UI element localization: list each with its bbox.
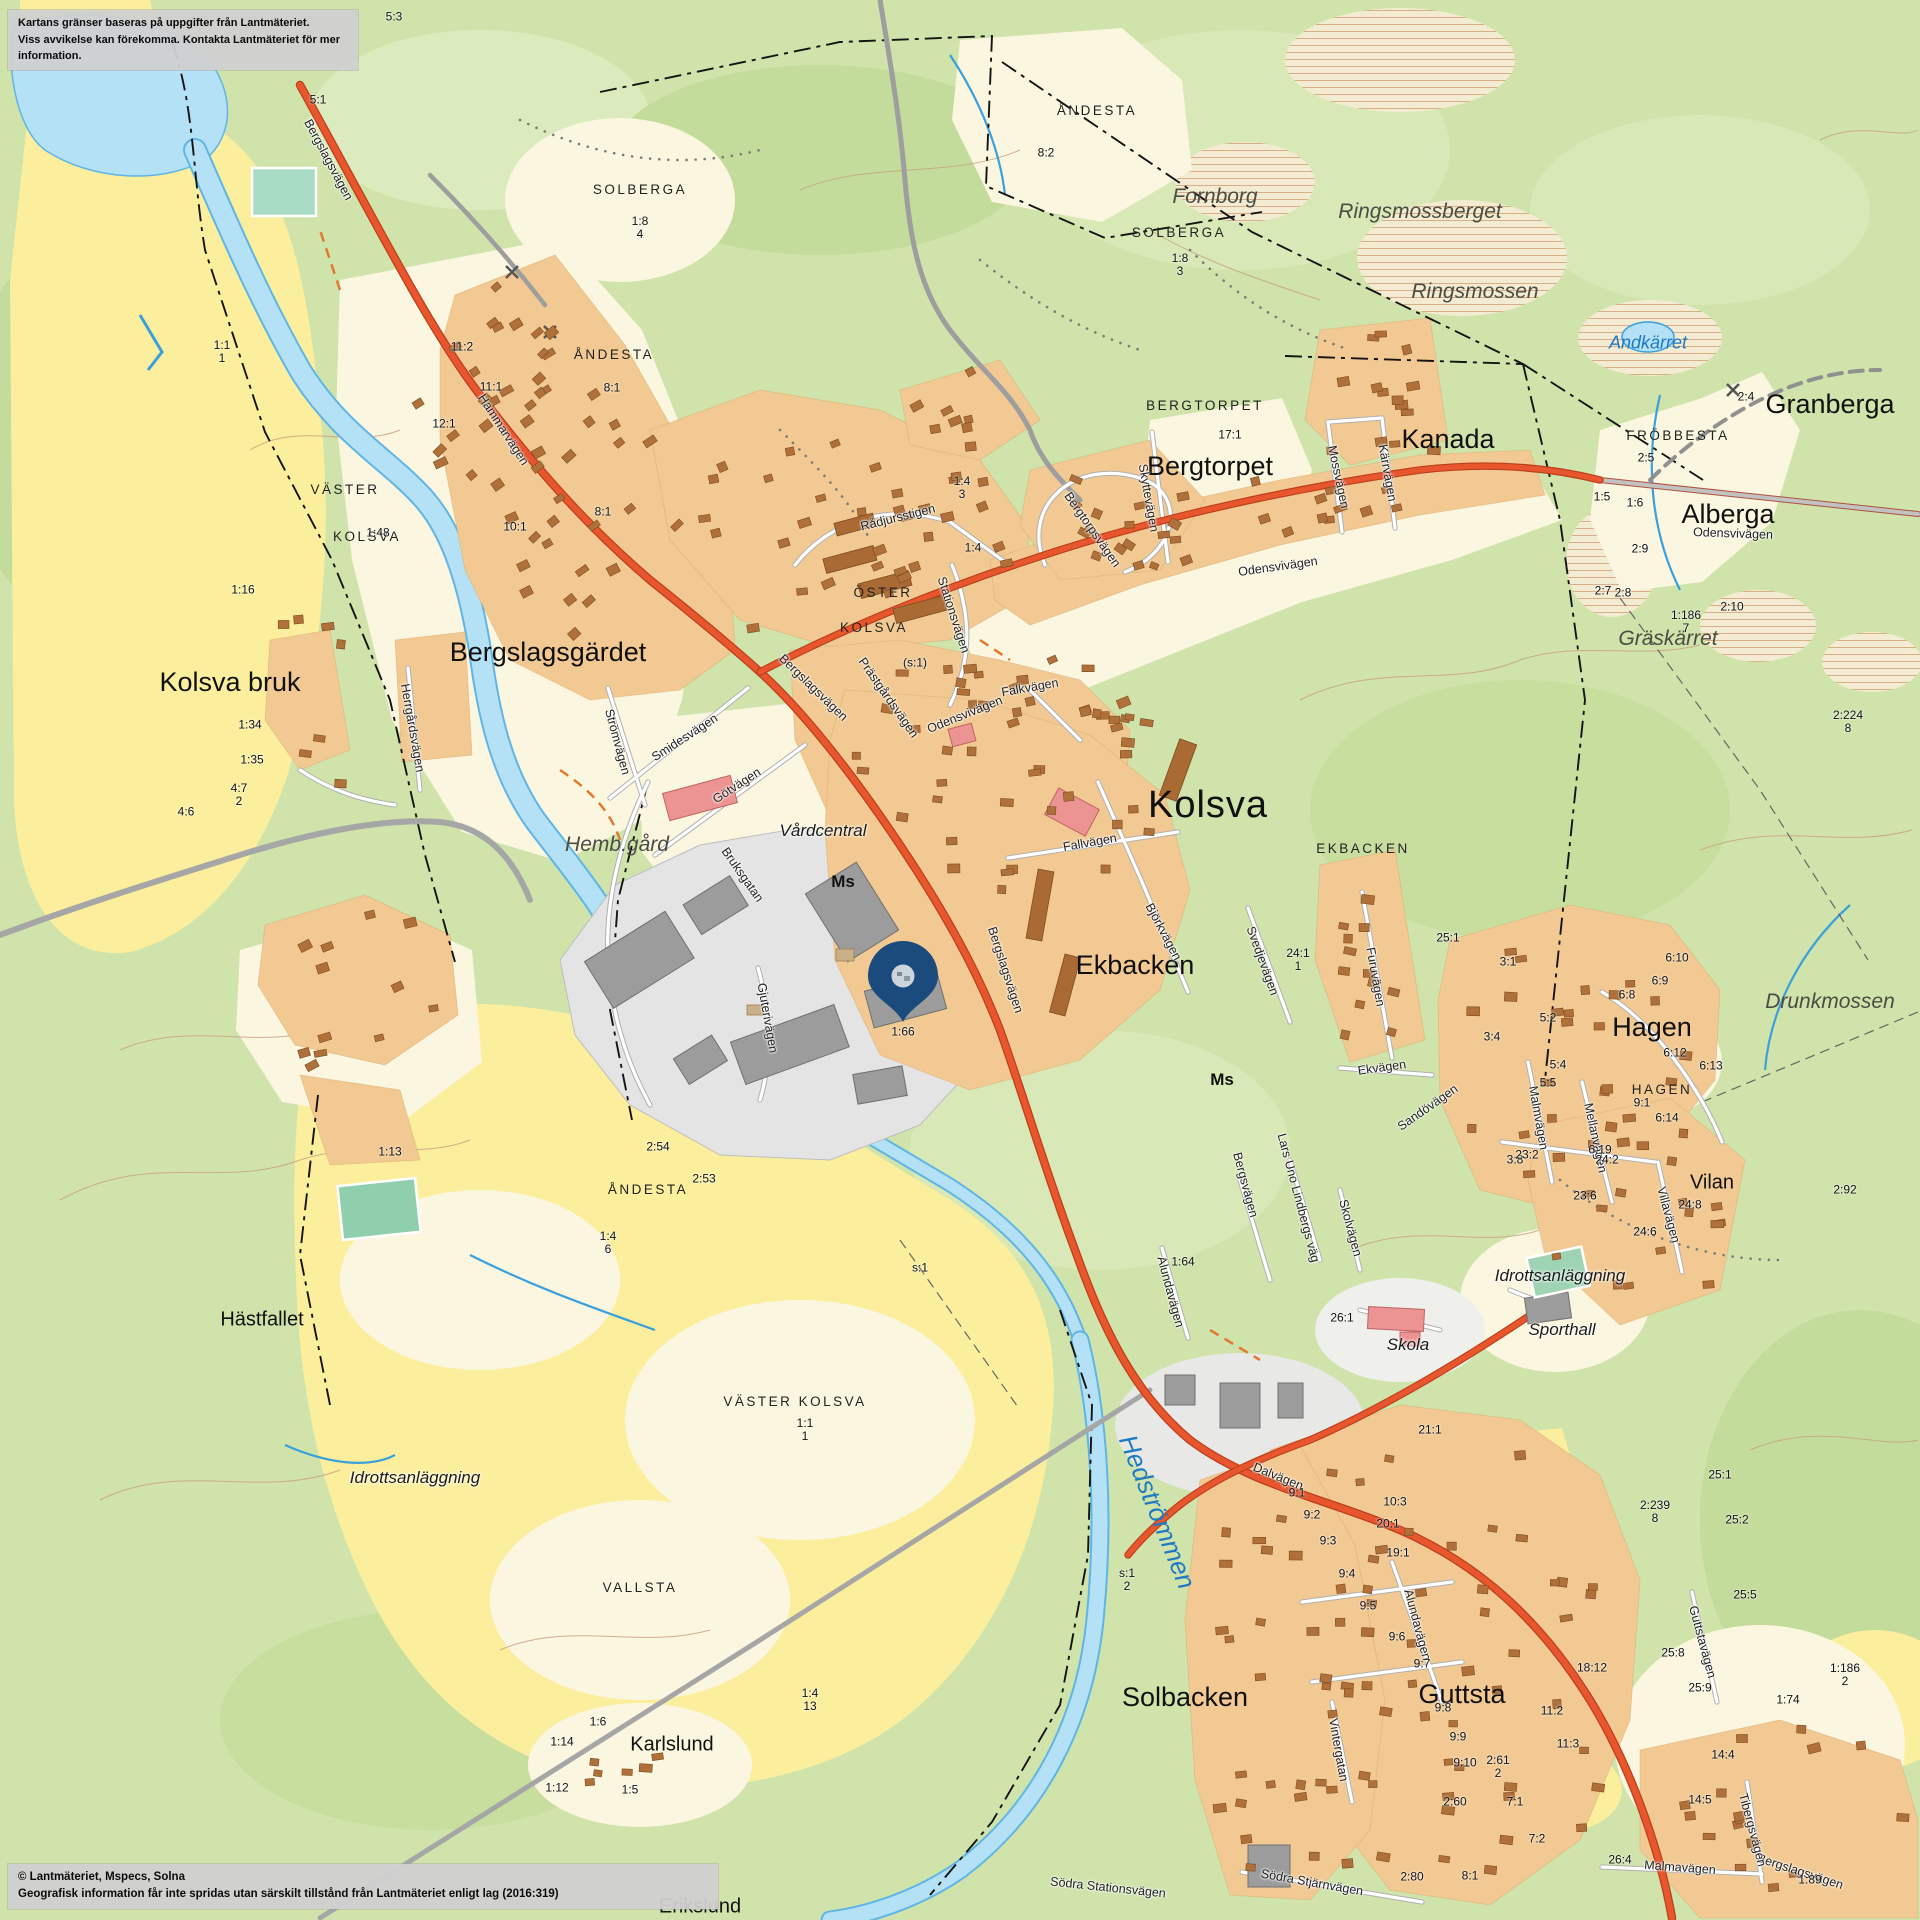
house-footprint xyxy=(1488,1525,1498,1533)
house-footprint xyxy=(1553,1153,1565,1162)
map-canvas[interactable]: KolsvaBergslagsgärdetKolsva brukHästfall… xyxy=(0,0,1920,1920)
house-footprint xyxy=(278,620,289,628)
house-footprint xyxy=(1235,1771,1246,1779)
house-footprint xyxy=(1588,1584,1597,1591)
copyright-notice: © Lantmäteriet, Mspecs, Solna Geografisk… xyxy=(8,1864,718,1909)
house-footprint xyxy=(1733,1811,1744,1821)
house-footprint xyxy=(1492,1686,1502,1694)
house-footprint xyxy=(747,623,760,633)
disclaimer-line-1: Kartans gränser baseras på uppgifter frå… xyxy=(18,15,348,32)
house-footprint xyxy=(1613,1280,1622,1289)
house-footprint xyxy=(1541,1079,1554,1086)
house-footprint xyxy=(852,752,860,759)
house-footprint xyxy=(1444,1759,1453,1766)
house-footprint xyxy=(1504,1782,1517,1791)
house-footprint xyxy=(1256,1618,1266,1626)
house-footprint xyxy=(1125,713,1135,720)
house-footprint xyxy=(1359,923,1369,931)
house-footprint xyxy=(1344,1688,1353,1697)
house-footprint xyxy=(1477,1585,1488,1594)
disclaimer-line-2: Viss avvikelse kan förekomma. Kontakta L… xyxy=(18,32,348,65)
house-footprint xyxy=(951,472,962,481)
house-footprint xyxy=(1897,1813,1909,1821)
house-footprint xyxy=(1552,1008,1564,1016)
house-footprint xyxy=(1327,446,1336,454)
house-footprint xyxy=(1441,1806,1455,1816)
house-footprint xyxy=(1092,709,1101,719)
map-disclaimer-note: Kartans gränser baseras på uppgifter frå… xyxy=(8,10,358,70)
house-footprint xyxy=(652,1753,664,1761)
house-footprint xyxy=(1320,1674,1332,1684)
house-footprint xyxy=(1467,1007,1480,1016)
house-footprint xyxy=(1623,1282,1634,1290)
house-footprint xyxy=(1327,1469,1338,1477)
house-footprint xyxy=(1420,1711,1430,1721)
house-footprint xyxy=(1439,1855,1450,1863)
copyright-line-2: Geografisk information får inte spridas … xyxy=(18,1886,708,1903)
house-footprint xyxy=(1379,1707,1392,1717)
house-footprint xyxy=(1375,331,1387,337)
house-footprint xyxy=(1462,1666,1475,1676)
house-footprint xyxy=(1368,1555,1379,1563)
house-footprint xyxy=(1515,955,1527,962)
house-footprint xyxy=(1253,1537,1266,1544)
house-footprint xyxy=(1289,1551,1302,1560)
house-footprint xyxy=(1344,934,1353,943)
house-footprint xyxy=(593,1770,602,1777)
house-footprint xyxy=(698,514,710,522)
house-footprint xyxy=(978,701,989,710)
house-footprint xyxy=(1358,1771,1370,1780)
house-footprint xyxy=(1553,1699,1562,1708)
house-footprint xyxy=(1580,1747,1589,1754)
house-footprint xyxy=(1336,1584,1346,1594)
house-footprint xyxy=(930,424,941,434)
house-footprint xyxy=(1361,894,1375,904)
house-footprint xyxy=(892,489,903,499)
house-footprint xyxy=(796,588,807,596)
house-footprint xyxy=(932,796,942,803)
copyright-line-1: © Lantmäteriet, Mspecs, Solna xyxy=(18,1869,708,1886)
house-footprint xyxy=(1427,446,1440,455)
house-footprint xyxy=(336,639,345,649)
house-footprint xyxy=(1213,1803,1227,1813)
house-footprint xyxy=(1656,1247,1666,1255)
house-footprint xyxy=(1361,1628,1374,1637)
house-footprint xyxy=(1550,1580,1559,1586)
house-footprint xyxy=(1447,1542,1456,1550)
house-footprint xyxy=(896,670,908,676)
house-footprint xyxy=(1703,1280,1715,1288)
house-footprint xyxy=(1586,1589,1596,1598)
house-footprint xyxy=(1371,383,1383,393)
house-footprint xyxy=(942,746,953,755)
house-footprint xyxy=(1376,1852,1390,1862)
house-footprint xyxy=(1222,1528,1231,1538)
house-footprint xyxy=(1679,1129,1688,1138)
house-footprint xyxy=(1340,1030,1350,1040)
house-footprint xyxy=(1125,521,1134,528)
house-footprint xyxy=(957,689,970,696)
house-footprint xyxy=(1063,792,1074,802)
house-footprint xyxy=(963,664,977,673)
house-footprint xyxy=(1219,1560,1232,1567)
house-footprint xyxy=(1101,865,1110,873)
house-footprint xyxy=(1215,1626,1228,1635)
house-footprint xyxy=(1261,1546,1273,1555)
house-footprint xyxy=(335,779,347,788)
house-footprint xyxy=(1523,1170,1535,1177)
house-footprint xyxy=(1246,1864,1256,1872)
house-footprint xyxy=(1736,1734,1747,1742)
house-footprint xyxy=(1711,1220,1724,1228)
house-footprint xyxy=(1667,1157,1677,1166)
house-footprint xyxy=(1362,1681,1372,1690)
house-footprint xyxy=(585,1778,595,1786)
house-footprint xyxy=(1768,1883,1779,1892)
house-footprint xyxy=(1588,1141,1598,1148)
house-footprint xyxy=(1703,1833,1715,1840)
house-footprint xyxy=(1326,1786,1337,1793)
house-footprint xyxy=(1509,1650,1520,1657)
house-footprint xyxy=(948,864,960,873)
house-footprint xyxy=(708,474,719,484)
house-footprint xyxy=(1561,1018,1573,1027)
house-footprint xyxy=(1717,1789,1727,1797)
house-footprint xyxy=(1484,1865,1497,1874)
house-footprint xyxy=(1276,1515,1286,1523)
house-footprint xyxy=(1296,1780,1306,1790)
house-footprint xyxy=(1680,1051,1692,1061)
house-footprint xyxy=(1337,376,1350,387)
house-footprint xyxy=(1112,820,1122,829)
house-footprint xyxy=(710,528,721,538)
house-footprint xyxy=(1582,1190,1594,1198)
house-footprint xyxy=(1082,665,1094,672)
house-footprint xyxy=(1392,396,1403,405)
house-footprint xyxy=(1685,1208,1694,1217)
house-footprint xyxy=(1255,1673,1266,1681)
house-footprint xyxy=(1547,1114,1556,1122)
house-footprint xyxy=(1442,1792,1454,1800)
house-footprint xyxy=(1363,1585,1373,1594)
house-footprint xyxy=(946,837,957,845)
house-footprint xyxy=(881,704,894,714)
house-footprint xyxy=(857,767,869,774)
house-footprint xyxy=(1338,967,1350,976)
house-footprint xyxy=(1266,1780,1276,1788)
house-footprint xyxy=(1235,1799,1246,1808)
house-footprint xyxy=(1401,409,1413,416)
house-footprint xyxy=(1158,531,1170,539)
house-footprint xyxy=(978,477,989,486)
house-footprint xyxy=(1120,750,1132,758)
house-footprint xyxy=(943,665,952,674)
house-footprint xyxy=(1408,1680,1417,1688)
house-footprint xyxy=(1309,1852,1319,1860)
house-footprint xyxy=(1121,738,1135,748)
house-footprint xyxy=(1177,492,1190,502)
house-footprint xyxy=(590,1758,599,1766)
house-footprint xyxy=(1128,805,1138,813)
house-footprint xyxy=(962,422,973,432)
house-footprint xyxy=(998,885,1006,893)
house-footprint xyxy=(1678,1198,1687,1206)
house-footprint xyxy=(1328,1710,1338,1718)
house-footprint xyxy=(1468,1124,1477,1132)
house-footprint xyxy=(1356,1478,1365,1485)
house-footprint xyxy=(1480,1608,1490,1617)
house-footprint xyxy=(1594,1023,1604,1030)
house-footprint xyxy=(1747,1838,1759,1848)
house-footprint xyxy=(1581,985,1590,994)
house-footprint xyxy=(1504,992,1517,1002)
house-footprint xyxy=(1617,1138,1630,1147)
house-footprint xyxy=(1250,476,1260,486)
house-footprint xyxy=(1355,1000,1365,1009)
house-footprint xyxy=(1455,1765,1464,1771)
house-footprint xyxy=(1505,948,1517,955)
house-footprint xyxy=(1369,1781,1377,1788)
house-footprint xyxy=(1109,716,1120,724)
house-footprint xyxy=(896,812,908,822)
house-footprint xyxy=(1564,1009,1574,1017)
house-footprint xyxy=(1405,1528,1414,1536)
house-footprint xyxy=(1363,969,1374,977)
house-footprint xyxy=(1625,980,1634,987)
house-footprint xyxy=(1576,1824,1586,1832)
house-footprint xyxy=(1504,1792,1515,1800)
house-footprint xyxy=(937,779,947,786)
house-footprint xyxy=(299,749,312,757)
house-footprint xyxy=(965,442,976,452)
house-footprint xyxy=(1735,1864,1746,1871)
house-footprint xyxy=(1592,1783,1605,1792)
house-footprint xyxy=(1047,806,1056,814)
house-footprint xyxy=(955,678,966,688)
house-footprint xyxy=(1170,536,1181,543)
house-footprint xyxy=(1407,1639,1416,1647)
house-footprint xyxy=(1685,1811,1696,1820)
house-footprint xyxy=(1017,675,1029,685)
house-footprint xyxy=(967,747,976,756)
house-footprint xyxy=(1514,1450,1525,1460)
house-footprint xyxy=(1679,1801,1690,1810)
house-footprint xyxy=(1000,798,1013,806)
house-footprint xyxy=(1338,922,1348,930)
house-footprint xyxy=(1389,441,1400,448)
house-footprint xyxy=(1241,1834,1253,1843)
house-footprint xyxy=(1449,1720,1458,1727)
house-footprint xyxy=(1079,706,1091,717)
house-footprint xyxy=(1144,828,1155,836)
house-footprint xyxy=(1623,1114,1636,1123)
house-footprint xyxy=(1025,696,1035,706)
house-footprint xyxy=(1856,1741,1866,1750)
house-footprint xyxy=(321,622,334,631)
house-footprint xyxy=(1602,1084,1613,1093)
house-footprint xyxy=(1375,437,1387,447)
house-footprint xyxy=(1402,344,1412,355)
house-footprint xyxy=(909,725,920,733)
house-footprint xyxy=(1637,1142,1649,1150)
house-footprint xyxy=(1415,1588,1427,1597)
house-footprint xyxy=(293,615,303,624)
house-footprint xyxy=(1322,1683,1331,1691)
house-footprint xyxy=(1789,1871,1799,1878)
house-footprint xyxy=(1384,1455,1394,1463)
house-footprint xyxy=(1225,1636,1234,1643)
house-footprint xyxy=(1615,1188,1626,1197)
house-footprint xyxy=(1609,990,1621,999)
house-footprint xyxy=(968,701,976,709)
house-footprint xyxy=(1028,769,1041,777)
house-footprint xyxy=(1294,1792,1307,1801)
house-footprint xyxy=(639,1764,652,1773)
house-footprint xyxy=(1012,707,1021,717)
house-footprint xyxy=(1519,1131,1530,1139)
house-footprint xyxy=(429,1005,439,1013)
house-footprint xyxy=(1605,1122,1617,1132)
map-graphics-layer xyxy=(0,0,1920,1920)
house-footprint xyxy=(1711,1202,1722,1211)
house-footprint xyxy=(622,1769,633,1776)
house-footprint xyxy=(313,734,325,742)
house-footprint xyxy=(1375,1545,1388,1554)
house-footprint xyxy=(1651,996,1660,1005)
house-footprint xyxy=(1666,1078,1677,1086)
house-footprint xyxy=(1367,1599,1377,1607)
house-footprint xyxy=(924,532,934,542)
house-footprint xyxy=(1316,1779,1327,1786)
house-footprint xyxy=(785,447,795,456)
house-footprint xyxy=(1307,1627,1319,1635)
house-footprint xyxy=(1597,1205,1608,1212)
house-footprint xyxy=(1552,1253,1561,1260)
house-footprint xyxy=(857,508,866,516)
house-footprint xyxy=(1317,513,1328,523)
house-footprint xyxy=(1001,869,1014,876)
house-footprint xyxy=(1797,1725,1806,1733)
house-footprint xyxy=(1342,1859,1353,1869)
house-footprint xyxy=(1500,1835,1513,1845)
house-footprint xyxy=(1335,1618,1345,1626)
house-footprint xyxy=(1516,1534,1528,1542)
